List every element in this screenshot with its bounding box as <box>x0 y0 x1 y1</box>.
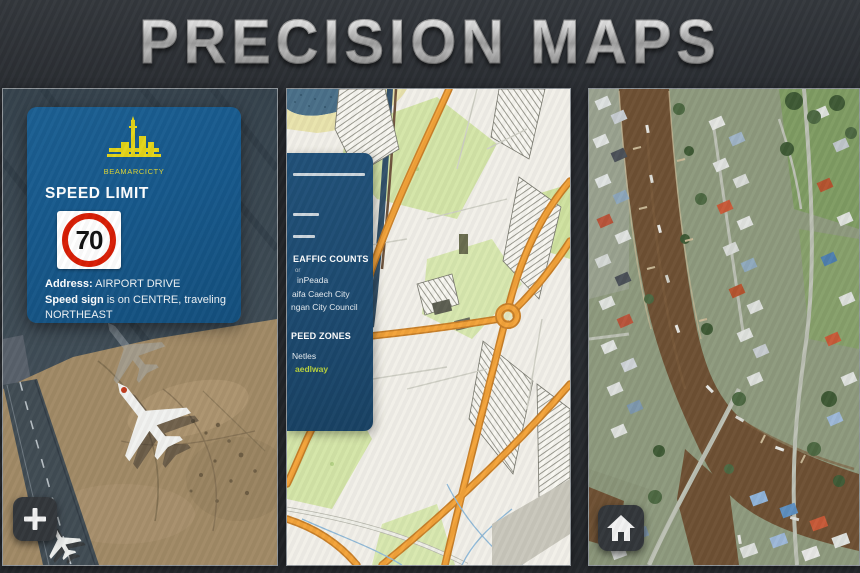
suburb-map-panel[interactable] <box>588 88 860 566</box>
home-button[interactable] <box>598 505 644 551</box>
speed-limit-card: BEAMARCICTY SPEED LIMIT 70 Address: AIRP… <box>27 107 241 323</box>
city-logo-icon <box>101 116 167 166</box>
zoom-in-button[interactable] <box>13 497 57 541</box>
legend-note: or <box>295 268 300 274</box>
legend-divider <box>293 235 315 238</box>
legend-link[interactable]: aedlway <box>295 364 328 374</box>
address-label: Address: <box>45 278 93 290</box>
legend-divider <box>293 173 365 176</box>
street-map-panel[interactable]: EAFFIC COUNTS or inPeada aifa Caech City… <box>286 88 571 566</box>
legend-item: inPeada <box>297 275 328 285</box>
legend-item: Netles <box>292 351 316 361</box>
speed-sign-ring: 70 <box>62 213 116 267</box>
card-address-text: Address: AIRPORT DRIVE Speed sign is on … <box>45 277 231 324</box>
direction-line2: NORTHEAST <box>45 309 113 321</box>
map-legend-sidebar: EAFFIC COUNTS or inPeada aifa Caech City… <box>287 153 373 431</box>
card-heading: SPEED LIMIT <box>45 185 241 203</box>
legend-divider <box>293 213 319 216</box>
airport-map-panel[interactable]: BEAMARCICTY SPEED LIMIT 70 Address: AIRP… <box>2 88 278 566</box>
roundabout <box>499 307 517 325</box>
legend-section-title: PEED ZONES <box>291 331 351 341</box>
legend-item: aifa Caech City <box>292 289 350 299</box>
plus-icon <box>22 506 48 532</box>
legend-item: ngan City Council <box>291 302 358 312</box>
app-window: PRECISION MAPS <box>0 0 860 573</box>
direction-label: Speed sign <box>45 294 104 306</box>
city-logo-label: BEAMARCICTY <box>27 167 241 176</box>
address-value: AIRPORT DRIVE <box>93 278 181 290</box>
legend-section-title: EAFFIC COUNTS <box>293 254 369 264</box>
suburb-aerial-image[interactable] <box>589 89 859 565</box>
airplane-nose-marking <box>121 387 127 393</box>
home-icon <box>606 514 636 542</box>
page-title: PRECISION MAPS <box>0 6 860 78</box>
direction-rest: is on CENTRE, traveling <box>104 294 226 306</box>
speed-sign: 70 <box>57 211 121 269</box>
speed-value: 70 <box>76 225 103 256</box>
